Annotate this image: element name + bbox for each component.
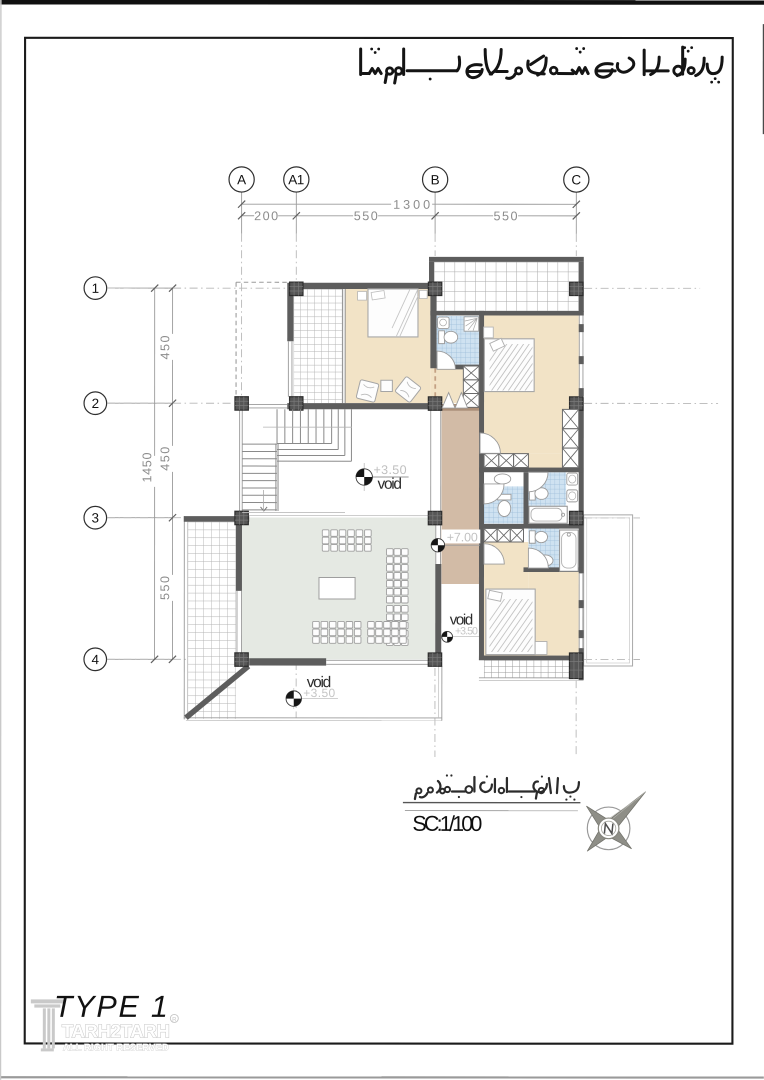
svg-text:A1: A1 [288, 172, 304, 187]
svg-text:TYPE 1: TYPE 1 [54, 990, 168, 1024]
svg-text:+7.00: +7.00 [447, 530, 478, 544]
svg-text:+3.50: +3.50 [455, 625, 478, 637]
svg-text:550: 550 [158, 576, 172, 600]
svg-text:550: 550 [354, 209, 378, 223]
svg-text:2: 2 [92, 396, 100, 411]
svg-text:200: 200 [254, 209, 278, 223]
svg-text:SC:1/100: SC:1/100 [412, 812, 482, 836]
svg-text:R: R [172, 1016, 177, 1023]
svg-text:1450: 1450 [140, 453, 154, 483]
svg-text:TARH2TARH: TARH2TARH [62, 1020, 170, 1041]
svg-text:1: 1 [92, 281, 100, 296]
svg-text:C: C [571, 172, 581, 187]
svg-text:A: A [237, 172, 246, 187]
svg-text:3: 3 [92, 510, 100, 525]
svg-text:450: 450 [158, 447, 172, 471]
svg-text:+3.50: +3.50 [303, 686, 335, 700]
svg-text:B: B [431, 172, 440, 187]
svg-text:4: 4 [91, 652, 99, 667]
svg-text:550: 550 [494, 209, 518, 223]
svg-text:void: void [378, 476, 403, 493]
svg-text:ALL RIGHT RESERVED: ALL RIGHT RESERVED [63, 1042, 169, 1053]
svg-text:450: 450 [158, 335, 172, 359]
